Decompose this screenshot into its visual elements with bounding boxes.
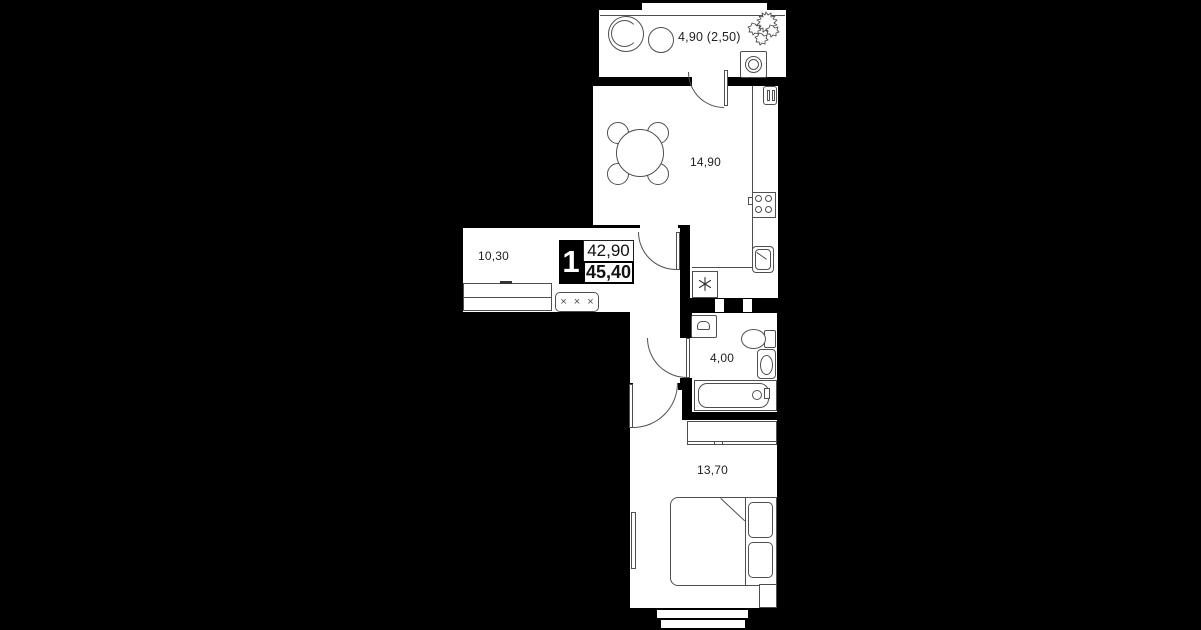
fridge-handle [772, 90, 775, 101]
armchair-back-icon [611, 20, 638, 47]
bathtub-drain-icon [752, 390, 762, 400]
window-bar-inner [661, 620, 745, 628]
bathtub-faucet-icon [764, 388, 770, 399]
plant-icon [745, 9, 787, 51]
tv-icon [631, 512, 636, 569]
burner-icon [755, 195, 762, 202]
dining-table-icon [616, 129, 664, 177]
balcony-area-label: 4,90 (2,50) [678, 30, 741, 44]
hall-wardrobe-shelf-line [463, 297, 552, 298]
kitchen-door-leaf [676, 232, 680, 270]
bedroom-area-label: 13,70 [697, 463, 728, 477]
kitchen-counter-edge [752, 86, 753, 268]
toilet-bowl-icon [741, 329, 766, 349]
nightstand-icon [759, 584, 777, 608]
pillow-icon [748, 542, 773, 578]
coat-hooks-icon: ××× [555, 292, 599, 312]
bedroom-wardrobe-line [687, 441, 777, 442]
floor-plan: ××× 1 42,90 45,40 4,90 (2,50) 14,90 10,3… [0, 0, 1201, 630]
pillow-icon [748, 502, 773, 538]
bath-sink-basin [760, 355, 773, 375]
vent-slot-1 [715, 299, 724, 312]
side-table-icon [648, 27, 674, 53]
vent-slot-2 [743, 299, 752, 312]
asterisk-icon [697, 276, 713, 292]
burner-icon [765, 195, 772, 202]
kitchen-counter-return-edge [692, 267, 753, 268]
bathroom-area-label: 4,00 [710, 351, 734, 365]
bed-headboard-line [745, 497, 746, 586]
hallway-area-label: 10,30 [478, 249, 509, 263]
balcony-door-leaf [724, 70, 728, 106]
stove-knob-tab [748, 197, 753, 205]
burner-icon [765, 206, 772, 213]
rooms-count-badge: 1 [559, 240, 583, 284]
balcony-stool-ring-inner [748, 59, 759, 70]
total-area-box: 45,40 [583, 261, 634, 284]
burner-icon [755, 206, 762, 213]
fridge-handle [767, 90, 770, 101]
kitchen-area-label: 14,90 [690, 155, 721, 169]
bedroom-wardrobe-notch [714, 441, 723, 445]
hall-wardrobe-tick [500, 281, 512, 284]
window-bar-outer [657, 610, 748, 618]
living-area-box: 42,90 [583, 240, 634, 262]
washing-machine-detail [697, 321, 710, 330]
